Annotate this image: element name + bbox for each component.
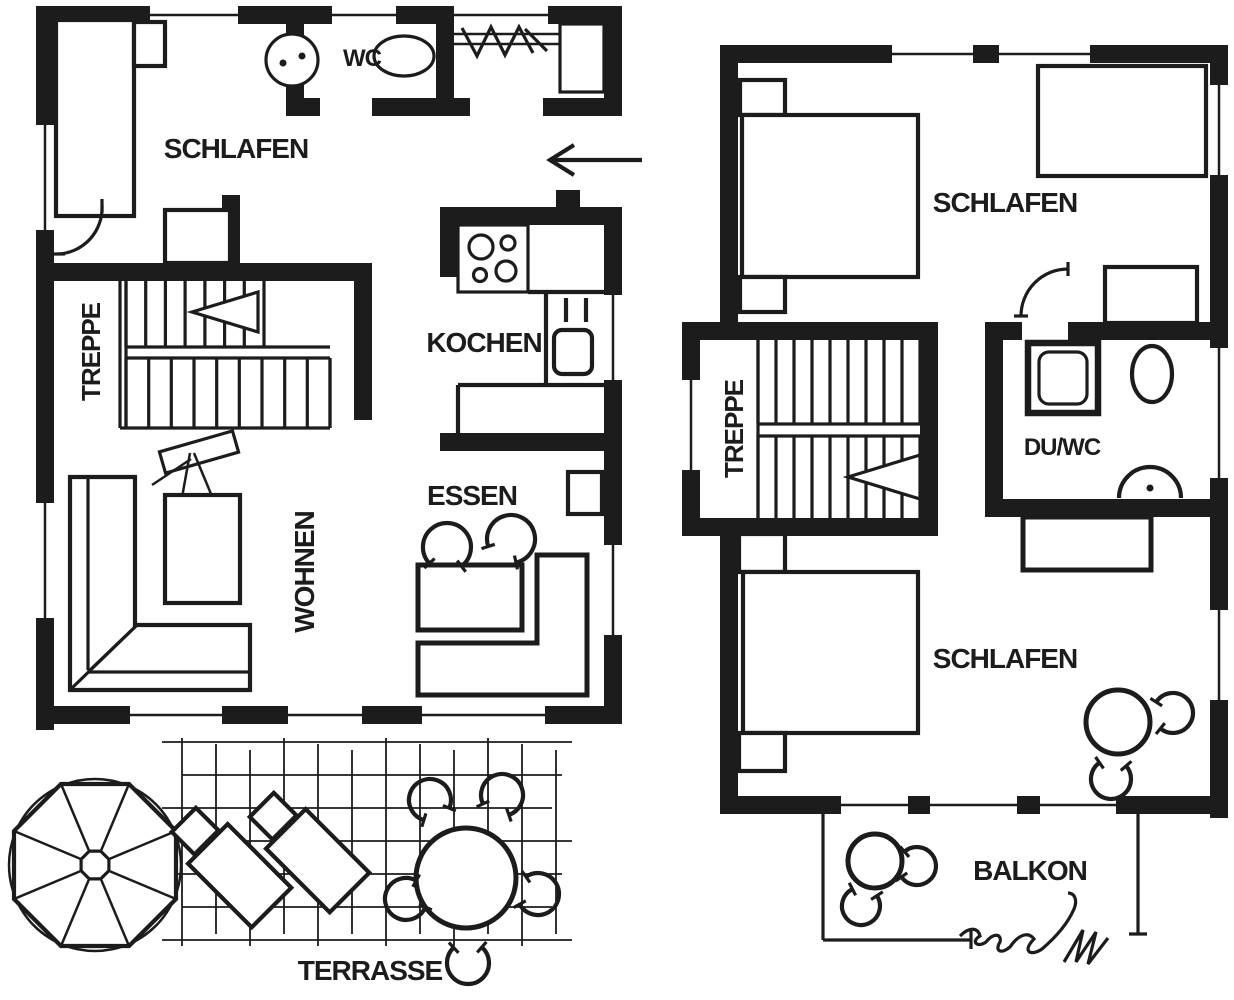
area-label-terrasse: TERRASSE [298, 955, 443, 986]
nightstand [739, 733, 785, 771]
plant-icon [960, 893, 1108, 964]
nightstand [740, 80, 785, 115]
room-label-schlafen-og-bottom: SCHLAFEN [933, 643, 1077, 674]
toilet-icon [1132, 346, 1172, 402]
floor-plan-drawing: SCHLAFEN WC [0, 0, 1234, 1000]
og-bedroom-top: SCHLAFEN [740, 66, 1206, 323]
clothes-hangers-icon [462, 27, 533, 56]
dresser [165, 210, 230, 263]
stove-icon [458, 225, 528, 292]
room-label-treppe-eg: TREPPE [76, 302, 106, 401]
room-label-schlafen-og-top: SCHLAFEN [933, 187, 1077, 218]
coffee-table [165, 495, 240, 603]
room-label-du-wc: DU/WC [1024, 434, 1101, 461]
double-bed [743, 572, 918, 733]
eg-dining: ESSEN [418, 472, 602, 695]
eg-closet [454, 24, 604, 92]
chair-icon [423, 523, 471, 566]
kitchen-sink-icon [554, 330, 592, 374]
nightstand [740, 277, 785, 312]
dining-table [418, 565, 522, 630]
room-label-wohnen: WOHNEN [289, 511, 320, 633]
eg-living: WOHNEN [70, 431, 320, 690]
room-label-wc: WC [343, 45, 382, 72]
chair-icon [487, 515, 535, 562]
single-bed [56, 20, 134, 216]
og-bath: DU/WC [1024, 343, 1181, 498]
washbasin-icon [1119, 467, 1181, 498]
floor-plan-page: SCHLAFEN WC [0, 0, 1234, 1000]
terrace: TERRASSE [9, 738, 572, 986]
round-table [1086, 690, 1150, 754]
entrance-arrow-icon [550, 145, 642, 175]
eg-stairs: TREPPE [76, 281, 330, 428]
desk [1105, 267, 1197, 323]
washbasin-icon [266, 34, 318, 86]
chair-icon [520, 873, 559, 915]
eg-wc: WC [266, 34, 434, 86]
door-swing-icon [1014, 262, 1068, 316]
round-table [848, 834, 902, 888]
chair-icon [842, 889, 880, 925]
room-label-treppe-og: TREPPE [719, 379, 749, 478]
room-label-kochen: KOCHEN [426, 327, 541, 358]
og-stairs: TREPPE [719, 340, 920, 518]
nightstand [739, 534, 785, 572]
bed-pillow [134, 22, 165, 66]
room-label-essen: ESSEN [427, 480, 517, 511]
ground-floor-plan: SCHLAFEN WC [9, 6, 642, 986]
dresser [1023, 517, 1151, 570]
upper-floor-plan: SCHLAFEN TREPPE DU/WC [682, 45, 1228, 964]
wardrobe [1038, 66, 1206, 176]
parasol-icon [9, 779, 181, 951]
toilet-icon [374, 36, 434, 76]
garden-table [416, 828, 516, 928]
chair-icon [447, 947, 489, 984]
og-bedroom-bottom: SCHLAFEN [739, 517, 1151, 771]
double-bed [742, 115, 918, 277]
area-label-balkon: BALKON [973, 855, 1087, 886]
closet-shelf [560, 24, 604, 92]
side-table [568, 472, 602, 514]
chair-icon [409, 779, 451, 820]
room-label-schlafen-eg: SCHLAFEN [164, 133, 308, 164]
balcony: BALKON [823, 814, 1147, 964]
